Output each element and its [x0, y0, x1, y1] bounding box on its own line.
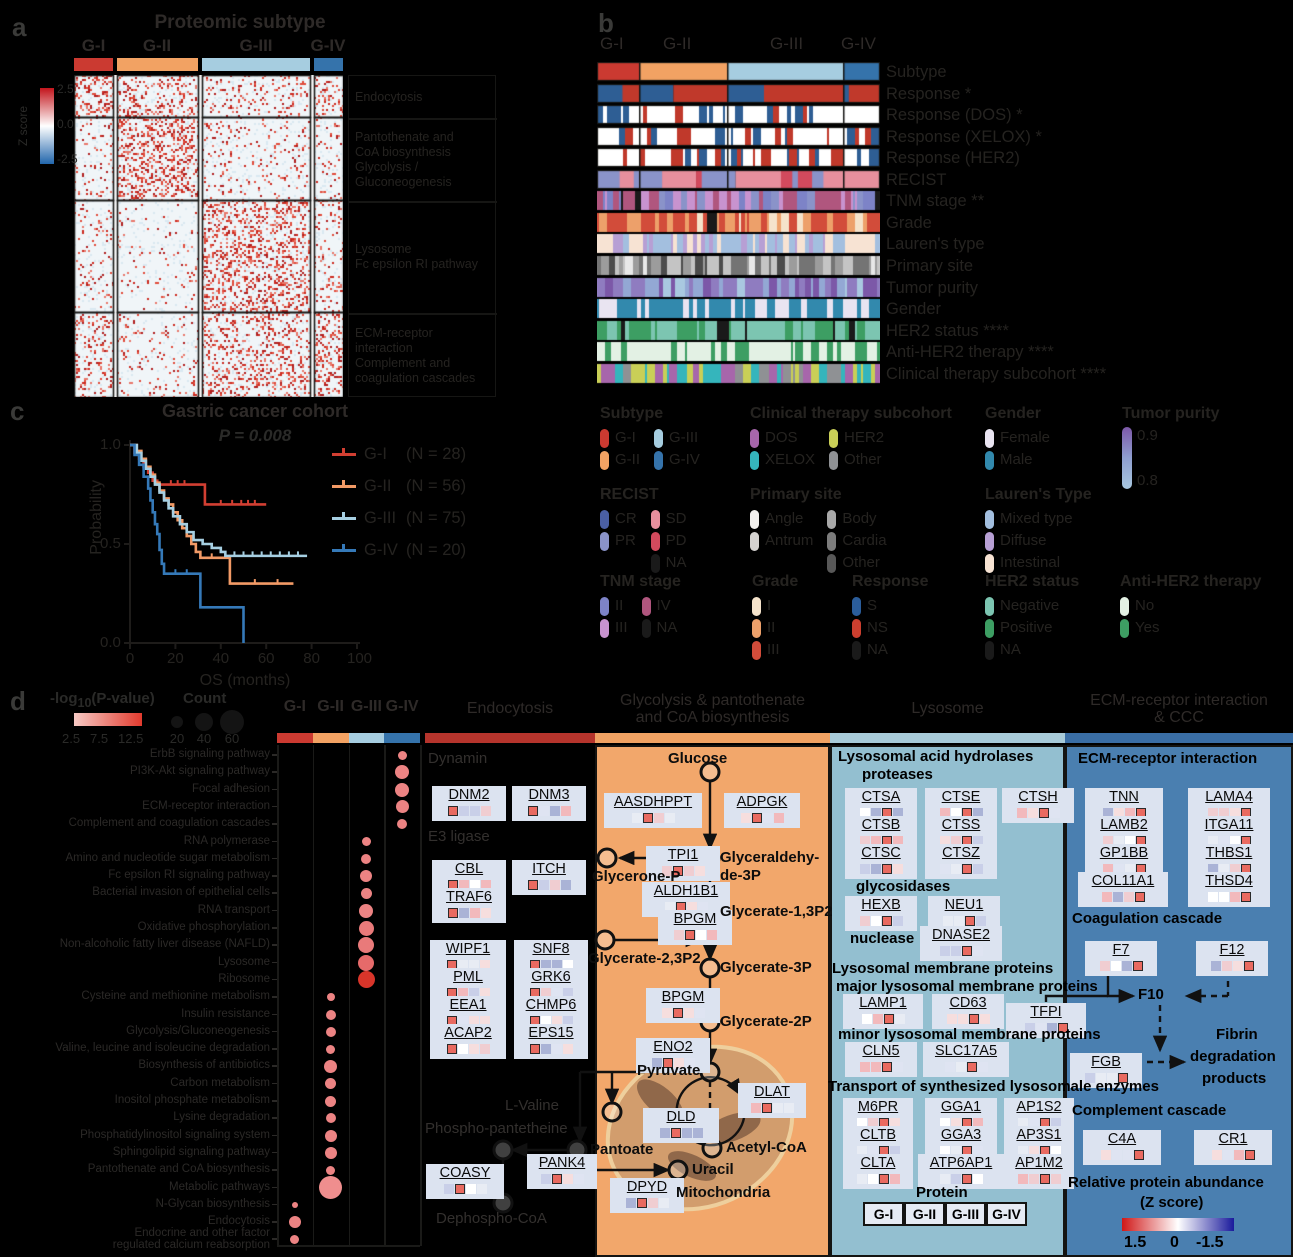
- zscore-square: [674, 930, 684, 940]
- diagram-text: Pyruvate: [637, 1062, 700, 1079]
- gene-box-DNM2: DNM2: [432, 786, 506, 821]
- diagram-shape: [669, 1161, 687, 1179]
- zscore-square: [940, 864, 950, 874]
- diagram-text: Dynamin: [428, 750, 487, 767]
- gene-name: F12: [1220, 942, 1245, 958]
- gene-name: WIPF1: [446, 941, 490, 957]
- diagram-text: proteases: [862, 766, 933, 783]
- zscore-square-highlight: [879, 1174, 889, 1184]
- diagram-text: Glucose: [668, 750, 727, 767]
- zscore-square: [470, 806, 480, 816]
- diagram-text: Glycerone-P: [592, 868, 680, 885]
- gene-box-ACAP2: ACAP2: [430, 1024, 506, 1059]
- zscore-square: [951, 1174, 961, 1184]
- zscore-square-highlight: [673, 1008, 683, 1018]
- zscore-square-highlight: [685, 930, 695, 940]
- gene-name: CLTB: [860, 1127, 896, 1143]
- gene-name: COASY: [440, 1165, 491, 1181]
- zscore-square: [774, 813, 784, 823]
- gene-name: EEA1: [449, 997, 486, 1013]
- zscore-square: [871, 916, 881, 926]
- zscore-square: [563, 1044, 573, 1054]
- diagram-text: Glycerate-2,3P2: [588, 950, 701, 967]
- zscore-square: [860, 864, 870, 874]
- gene-name: ALDH1B1: [654, 883, 718, 899]
- gene-name: ATP6AP1: [930, 1155, 993, 1171]
- zscore-square: [684, 1008, 694, 1018]
- zscore-square: [477, 1184, 487, 1194]
- diagram-text: Complement cascade: [1072, 1102, 1226, 1119]
- zscore-square: [980, 1014, 990, 1024]
- zscore-square-highlight: [1040, 1174, 1050, 1184]
- gene-box-CTSZ: CTSZ: [925, 844, 997, 879]
- gene-name: LAMB2: [1100, 817, 1148, 833]
- zscore-square: [1101, 1150, 1111, 1160]
- zscore-square: [868, 1174, 878, 1184]
- diagram-text: Dephospho-CoA: [436, 1210, 547, 1227]
- zscore-square: [1018, 1174, 1028, 1184]
- gene-name: ITCH: [532, 861, 566, 877]
- protein-legend-cell: G-I: [863, 1202, 904, 1226]
- gene-box-AASDHPPT: AASDHPPT: [604, 793, 702, 828]
- gene-name: LAMA4: [1205, 789, 1253, 805]
- gene-name: TFPI: [1030, 1004, 1061, 1020]
- gene-box-AP1M2: AP1M2: [1004, 1154, 1074, 1189]
- gene-name: GP1BB: [1100, 845, 1148, 861]
- diagram-text: Transport of synthesized lysosomale enzy…: [828, 1078, 1159, 1095]
- gene-name: M6PR: [858, 1099, 898, 1115]
- zscore-square: [773, 1103, 783, 1113]
- gene-box-BPGM: BPGM: [646, 988, 720, 1023]
- zscore-square: [784, 1103, 794, 1113]
- diagram-text: Lysosomal acid hydrolases: [838, 748, 1033, 765]
- gene-name: ENO2: [653, 1039, 693, 1055]
- gene-box-ADPGK: ADPGK: [724, 793, 800, 828]
- zscore-square: [751, 1103, 761, 1113]
- diagram-text: E3 ligase: [428, 828, 490, 845]
- zscore-square: [695, 866, 705, 876]
- gene-name: CTSH: [1018, 789, 1057, 805]
- diagram-text: Glycerate-2P: [720, 1013, 812, 1030]
- diagram-column-title: Glycolysis & pantothenate: [595, 692, 830, 710]
- zscore-square: [659, 1198, 669, 1208]
- zscore-square: [458, 1044, 468, 1054]
- gene-name: EPS15: [528, 1025, 573, 1041]
- zscore-square: [539, 806, 549, 816]
- zscore-square: [1102, 892, 1112, 902]
- diagram-text: glycosidases: [856, 878, 950, 895]
- gene-box-DPYD: DPYD: [610, 1178, 684, 1213]
- diagram-text: Glycerate-1,3P2: [720, 903, 833, 920]
- zscore-square: [561, 880, 571, 890]
- diagram-column-title: and CoA biosynthesis: [595, 709, 830, 727]
- zscore-square: [654, 813, 664, 823]
- gene-box-F7: F7: [1085, 941, 1157, 976]
- diagram-shape: [1046, 996, 1108, 1002]
- protein-legend-cell: G-III: [945, 1202, 986, 1226]
- zscore-square: [682, 1128, 692, 1138]
- zscore-square: [1212, 1150, 1222, 1160]
- gene-name: BPGM: [662, 989, 705, 1005]
- zscore-square: [958, 1014, 968, 1024]
- zscore-scale-tick: -1.5: [1196, 1234, 1224, 1252]
- gene-name: F7: [1113, 942, 1130, 958]
- diagram-shape: [596, 931, 614, 949]
- zscore-square: [763, 813, 773, 823]
- gene-name: FGB: [1091, 1054, 1121, 1070]
- diagram-text: (Z score): [1140, 1194, 1203, 1211]
- zscore-square: [707, 930, 717, 940]
- zscore-square-highlight: [967, 1062, 977, 1072]
- gene-name: DNM2: [448, 787, 489, 803]
- gene-name: C4A: [1108, 1131, 1136, 1147]
- zscore-square-highlight: [1135, 892, 1145, 902]
- zscore-square-highlight: [962, 1174, 972, 1184]
- gene-name: CBL: [455, 861, 483, 877]
- diagram-text: Glycerate-3P: [720, 959, 812, 976]
- gene-name: CLN5: [862, 1043, 899, 1059]
- gene-name: DLAT: [754, 1084, 790, 1100]
- gene-name: DNM3: [528, 787, 569, 803]
- zscore-square: [466, 1184, 476, 1194]
- diagram-text: Mitochondria: [676, 1184, 770, 1201]
- gene-name: CD63: [949, 995, 986, 1011]
- zscore-square: [481, 806, 491, 816]
- diagram-shape: [598, 849, 616, 867]
- gene-box-PANK4: PANK4: [527, 1154, 597, 1189]
- diagram-text: Protein: [916, 1184, 968, 1201]
- zscore-square: [662, 1008, 672, 1018]
- diagram-text: ECM-receptor interaction: [1078, 750, 1257, 767]
- zscore-square: [1222, 961, 1232, 971]
- zscore-square: [1100, 961, 1110, 971]
- gene-box-COL11A1: COL11A1: [1078, 872, 1168, 907]
- zscore-square: [1029, 1174, 1039, 1184]
- diagram-column-title: & CCC: [1065, 709, 1293, 727]
- zscore-square-highlight: [1134, 1150, 1144, 1160]
- zscore-square: [1208, 892, 1218, 902]
- zscore-square: [973, 1174, 983, 1184]
- gene-box-COASY: COASY: [426, 1164, 504, 1199]
- diagram-text: Glyceraldehy-: [720, 849, 819, 866]
- diagram-column-title: ECM-receptor interaction: [1065, 692, 1293, 710]
- gene-box-CD63: CD63: [932, 994, 1004, 1029]
- zscore-square: [890, 1174, 900, 1184]
- gene-name: LAMP1: [859, 995, 907, 1011]
- zscore-square: [741, 813, 751, 823]
- gene-box-DLD: DLD: [643, 1108, 719, 1143]
- zscore-square: [1211, 961, 1221, 971]
- zscore-square-highlight: [671, 1128, 681, 1138]
- zscore-square-highlight: [962, 946, 972, 956]
- gene-name: CHMP6: [526, 997, 577, 1013]
- zscore-square-highlight: [528, 806, 538, 816]
- diagram-text: Relative protein abundance: [1068, 1174, 1264, 1191]
- protein-legend-cell: G-II: [904, 1202, 945, 1226]
- zscore-square: [695, 1008, 705, 1018]
- zscore-square-highlight: [882, 864, 892, 874]
- zscore-square: [860, 1062, 870, 1072]
- gene-box-HEXB: HEXB: [845, 896, 917, 931]
- gene-box-CLTA: CLTA: [843, 1154, 913, 1189]
- zscore-square: [541, 1174, 551, 1184]
- gene-name: CTSZ: [942, 845, 980, 861]
- diagram-text: F10: [1138, 986, 1164, 1003]
- diagram-shape: [494, 1141, 512, 1159]
- gene-box-CLN5: CLN5: [845, 1042, 917, 1077]
- gene-name: CTSS: [942, 817, 981, 833]
- zscore-square-highlight: [448, 908, 458, 918]
- zscore-square-highlight: [962, 864, 972, 874]
- zscore-square: [480, 1044, 490, 1054]
- gene-name: ADPGK: [737, 794, 788, 810]
- zscore-square: [481, 908, 491, 918]
- gene-name: AP3S1: [1016, 1127, 1061, 1143]
- diagram-text: Uracil: [692, 1161, 734, 1178]
- gene-name: CTSA: [862, 789, 901, 805]
- zscore-square-highlight: [884, 1014, 894, 1024]
- zscore-square: [648, 1198, 658, 1208]
- zscore-square: [893, 1062, 903, 1072]
- zscore-square: [1050, 808, 1060, 818]
- gene-name: DPYD: [627, 1179, 667, 1195]
- gene-name: COL11A1: [1092, 873, 1155, 889]
- zscore-square: [951, 946, 961, 956]
- gene-name: GGA1: [941, 1099, 981, 1115]
- diagram-text: de-3P: [720, 867, 761, 884]
- zscore-square-highlight: [637, 1198, 647, 1208]
- figure-root: a b c d Proteomic subtype Z score Endocy…: [0, 0, 1293, 1257]
- gene-box-DNASE2: DNASE2: [920, 926, 1002, 961]
- gene-box-LAMP1: LAMP1: [843, 994, 923, 1029]
- gene-name: CTSB: [862, 817, 901, 833]
- gene-name: GGA3: [941, 1127, 981, 1143]
- gene-name: CTSE: [942, 789, 981, 805]
- zscore-square: [860, 916, 870, 926]
- gene-box-CTSC: CTSC: [845, 844, 917, 879]
- gene-name: CR1: [1218, 1131, 1247, 1147]
- zscore-square-highlight: [1245, 1150, 1255, 1160]
- zscore-square: [973, 864, 983, 874]
- zscore-square: [862, 1014, 872, 1024]
- zscore-square: [956, 1062, 966, 1072]
- gene-box-CTSH: CTSH: [1002, 788, 1074, 823]
- diagram-text: products: [1202, 1070, 1266, 1087]
- zscore-square: [1123, 1150, 1133, 1160]
- gene-name: NEU1: [945, 897, 984, 913]
- zscore-square: [943, 916, 953, 926]
- gene-name: GRK6: [531, 969, 571, 985]
- zscore-square: [973, 946, 983, 956]
- gene-name: TNN: [1109, 789, 1139, 805]
- diagram-text: major lysosomal membrane proteins: [836, 978, 1098, 995]
- gene-name: AP1M2: [1015, 1155, 1063, 1171]
- zscore-square: [561, 806, 571, 816]
- zscore-square: [469, 1044, 479, 1054]
- gene-box-EPS15: EPS15: [514, 1024, 588, 1059]
- gene-name: AASDHPPT: [614, 794, 692, 810]
- diagram-column-title: Endocytosis: [425, 700, 595, 718]
- zscore-square: [626, 1198, 636, 1208]
- gene-name: TPI1: [668, 847, 699, 863]
- diagram-text: Phospho-pantetheine: [425, 1120, 568, 1137]
- gene-name: AP1S2: [1016, 1099, 1061, 1115]
- zscore-square: [857, 1174, 867, 1184]
- zscore-square: [893, 864, 903, 874]
- gene-name: SNF8: [532, 941, 569, 957]
- gene-box-THSD4: THSD4: [1188, 872, 1270, 907]
- diagram-shape: [701, 959, 719, 977]
- zscore-square-highlight: [882, 916, 892, 926]
- gene-name: ITGA11: [1205, 817, 1254, 833]
- diagram-text: Acetyl-CoA: [726, 1139, 807, 1156]
- zscore-square: [873, 1014, 883, 1024]
- zscore-square: [1234, 1150, 1244, 1160]
- zscore-square: [1230, 892, 1240, 902]
- zscore-square: [1112, 1150, 1122, 1160]
- diagram-text: Pantoate: [590, 1141, 653, 1158]
- zscore-square: [871, 864, 881, 874]
- zscore-square: [1017, 808, 1027, 818]
- gene-name: HEXB: [861, 897, 901, 913]
- gene-box-SLC17A5: SLC17A5: [923, 1042, 1009, 1077]
- zscore-square-highlight: [530, 1044, 540, 1054]
- zscore-scale-tick: 1.5: [1124, 1234, 1146, 1252]
- zscore-square: [665, 813, 675, 823]
- zscore-square: [1219, 892, 1229, 902]
- zscore-square: [1223, 1150, 1233, 1160]
- zscore-square: [1122, 961, 1132, 971]
- zscore-square: [893, 916, 903, 926]
- zscore-square: [563, 1174, 573, 1184]
- protein-legend-cell: G-IV: [986, 1202, 1027, 1226]
- zscore-square: [470, 908, 480, 918]
- zscore-square-highlight: [1039, 808, 1049, 818]
- gene-box-DLAT: DLAT: [738, 1083, 806, 1118]
- diagram-text: Coagulation cascade: [1072, 910, 1222, 927]
- diagram-text: Lysosomal membrane proteins: [832, 960, 1053, 977]
- zscore-square-highlight: [448, 806, 458, 816]
- gene-box-TRAF6: TRAF6: [432, 888, 506, 923]
- zscore-square-highlight: [762, 1103, 772, 1113]
- gene-name: PANK4: [539, 1155, 585, 1171]
- zscore-square: [696, 930, 706, 940]
- zscore-square-highlight: [455, 1184, 465, 1194]
- gene-box-ITCH: ITCH: [512, 860, 586, 895]
- zscore-square-highlight: [447, 1044, 457, 1054]
- zscore-square: [632, 813, 642, 823]
- zscore-square: [550, 880, 560, 890]
- zscore-square: [1113, 892, 1123, 902]
- zscore-square: [954, 916, 964, 926]
- zscore-square: [552, 1044, 562, 1054]
- zscore-square: [1111, 961, 1121, 971]
- zscore-square: [1124, 892, 1134, 902]
- zscore-square-highlight: [1244, 961, 1254, 971]
- gene-box-C4A: C4A: [1083, 1130, 1161, 1165]
- diagram-text: minor lysosomal membrane proteins: [838, 1026, 1101, 1043]
- gene-name: THBS1: [1206, 845, 1253, 861]
- zscore-square: [895, 1014, 905, 1024]
- zscore-square: [574, 1174, 584, 1184]
- zscore-square: [684, 866, 694, 876]
- zscore-square: [951, 864, 961, 874]
- zscore-square-highlight: [969, 1014, 979, 1024]
- zscore-square: [1051, 1174, 1061, 1184]
- zscore-square: [1028, 808, 1038, 818]
- diagram-text: Fibrin: [1216, 1026, 1258, 1043]
- zscore-scale-bar: [1122, 1218, 1234, 1231]
- diagram-text: L-Valine: [505, 1097, 559, 1114]
- zscore-scale-tick: 0: [1170, 1234, 1179, 1252]
- diagram-text: degradation: [1190, 1048, 1276, 1065]
- gene-name: THSD4: [1205, 873, 1253, 889]
- zscore-square: [871, 1062, 881, 1072]
- zscore-square: [459, 908, 469, 918]
- zscore-square-highlight: [552, 1174, 562, 1184]
- gene-box-CR1: CR1: [1194, 1130, 1272, 1165]
- gene-name: CTSC: [861, 845, 900, 861]
- zscore-square: [976, 916, 986, 926]
- diagram-column-title: Lysosome: [830, 700, 1065, 718]
- gene-name: BPGM: [674, 911, 717, 927]
- zscore-square: [660, 1128, 670, 1138]
- zscore-square-highlight: [643, 813, 653, 823]
- zscore-square: [945, 1062, 955, 1072]
- zscore-square-highlight: [1133, 961, 1143, 971]
- zscore-square: [539, 880, 549, 890]
- gene-name: TRAF6: [446, 889, 492, 905]
- zscore-square: [947, 1014, 957, 1024]
- zscore-square-highlight: [752, 813, 762, 823]
- zscore-square: [978, 1062, 988, 1072]
- zscore-square-highlight: [528, 880, 538, 890]
- zscore-square: [459, 806, 469, 816]
- gene-name: DLD: [666, 1109, 695, 1125]
- zscore-square: [940, 946, 950, 956]
- gene-box-F12: F12: [1196, 941, 1268, 976]
- zscore-square-highlight: [882, 1062, 892, 1072]
- gene-name: CLTA: [861, 1155, 896, 1171]
- gene-name: ACAP2: [444, 1025, 492, 1041]
- zscore-square: [444, 1184, 454, 1194]
- gene-name: PML: [453, 969, 483, 985]
- gene-name: DNASE2: [932, 927, 990, 943]
- gene-box-DNM3: DNM3: [512, 786, 586, 821]
- gene-name: SLC17A5: [935, 1043, 997, 1059]
- diagram-text: nuclease: [850, 930, 914, 947]
- zscore-square: [541, 1044, 551, 1054]
- zscore-square-highlight: [965, 916, 975, 926]
- zscore-square: [1233, 961, 1243, 971]
- zscore-square-highlight: [1241, 892, 1251, 902]
- diagram-shape: [603, 1103, 621, 1121]
- zscore-square: [693, 1128, 703, 1138]
- zscore-square: [940, 1174, 950, 1184]
- zscore-square: [550, 806, 560, 816]
